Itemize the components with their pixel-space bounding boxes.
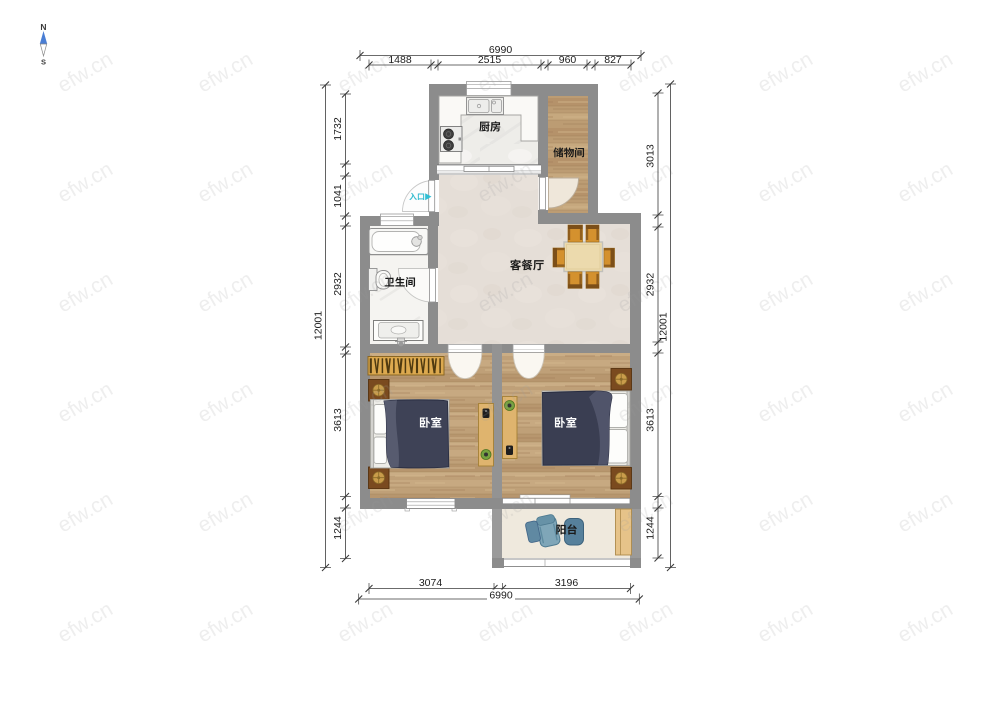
svg-text:2932: 2932: [645, 273, 657, 297]
svg-text:12001: 12001: [313, 311, 325, 340]
svg-text:3013: 3013: [645, 144, 657, 168]
svg-text:3613: 3613: [645, 408, 657, 432]
svg-text:3074: 3074: [419, 577, 443, 589]
svg-text:1244: 1244: [332, 516, 344, 540]
svg-text:6990: 6990: [489, 590, 513, 602]
svg-text:827: 827: [604, 54, 622, 66]
svg-text:1488: 1488: [388, 54, 412, 66]
svg-text:1732: 1732: [332, 117, 344, 141]
svg-text:3613: 3613: [332, 408, 344, 432]
svg-text:2932: 2932: [332, 272, 344, 296]
svg-text:2515: 2515: [478, 54, 502, 66]
svg-text:3196: 3196: [555, 577, 579, 589]
svg-text:960: 960: [559, 54, 577, 66]
svg-text:12001: 12001: [658, 312, 670, 341]
svg-text:1244: 1244: [645, 516, 657, 540]
svg-text:1041: 1041: [332, 184, 344, 208]
